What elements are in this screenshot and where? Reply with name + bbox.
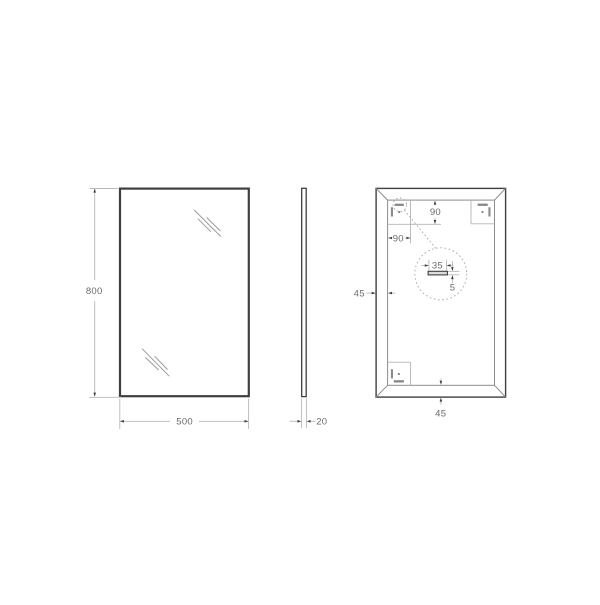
svg-text:500: 500: [176, 417, 193, 428]
svg-text:90: 90: [430, 207, 441, 218]
svg-text:45: 45: [435, 408, 446, 419]
svg-text:20: 20: [316, 417, 327, 428]
svg-text:90: 90: [393, 233, 404, 244]
svg-text:35: 35: [432, 261, 443, 272]
svg-text:45: 45: [354, 289, 365, 300]
svg-text:5: 5: [450, 282, 456, 293]
svg-text:800: 800: [86, 286, 103, 297]
